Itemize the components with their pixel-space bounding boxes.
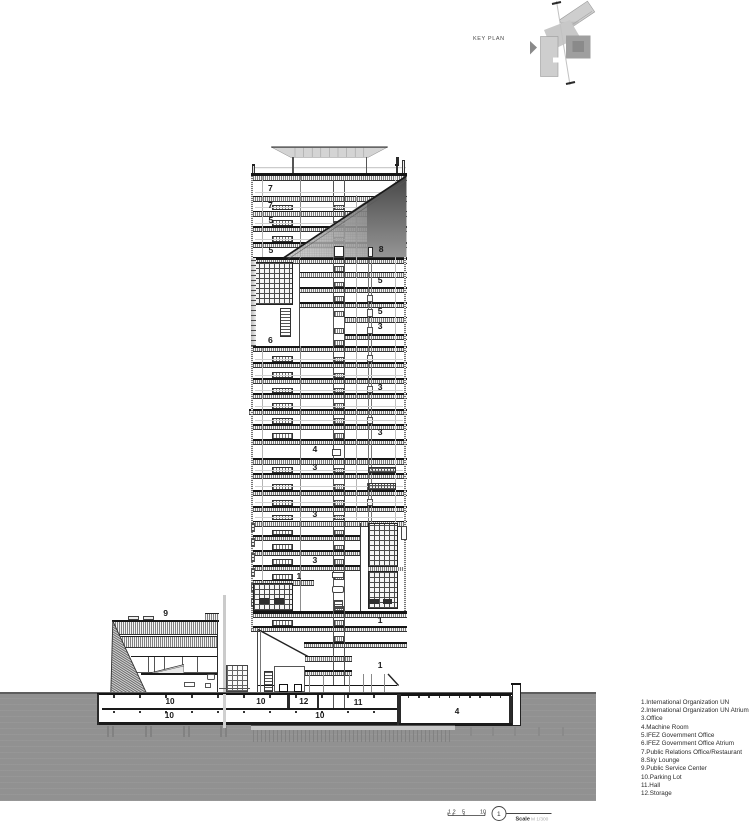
svg-text:M 1/300: M 1/300 [531, 817, 549, 822]
svg-text:5: 5 [462, 810, 465, 816]
svg-text:Scale: Scale [516, 817, 530, 822]
svg-text:1 2: 1 2 [448, 810, 456, 816]
svg-text:1: 1 [497, 811, 501, 818]
